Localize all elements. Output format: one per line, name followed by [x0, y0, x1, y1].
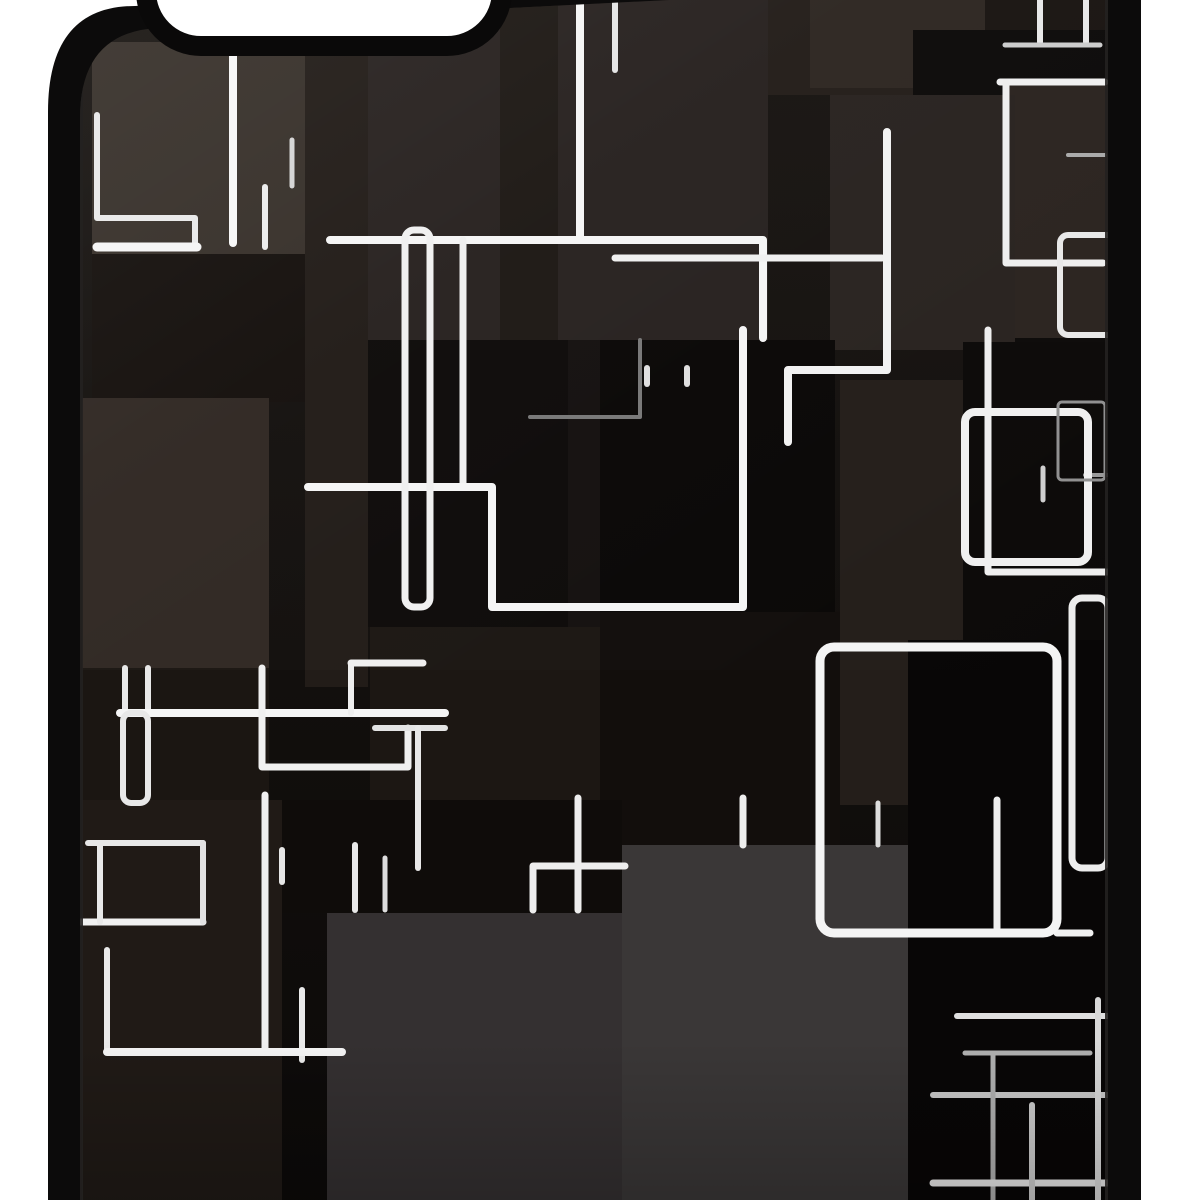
camera-cutout — [146, 0, 502, 46]
artwork-panel — [82, 668, 269, 800]
inner-edge-left — [80, 30, 83, 1200]
artwork-panel — [282, 800, 622, 913]
glossy-sheen — [70, 0, 1120, 670]
inner-edge-right — [1105, 0, 1108, 1200]
bottom-shadow — [70, 1040, 1120, 1200]
product-photo — [0, 0, 1200, 1200]
phone-case-product-image — [0, 0, 1200, 1200]
case-artwork — [70, 0, 1120, 1200]
